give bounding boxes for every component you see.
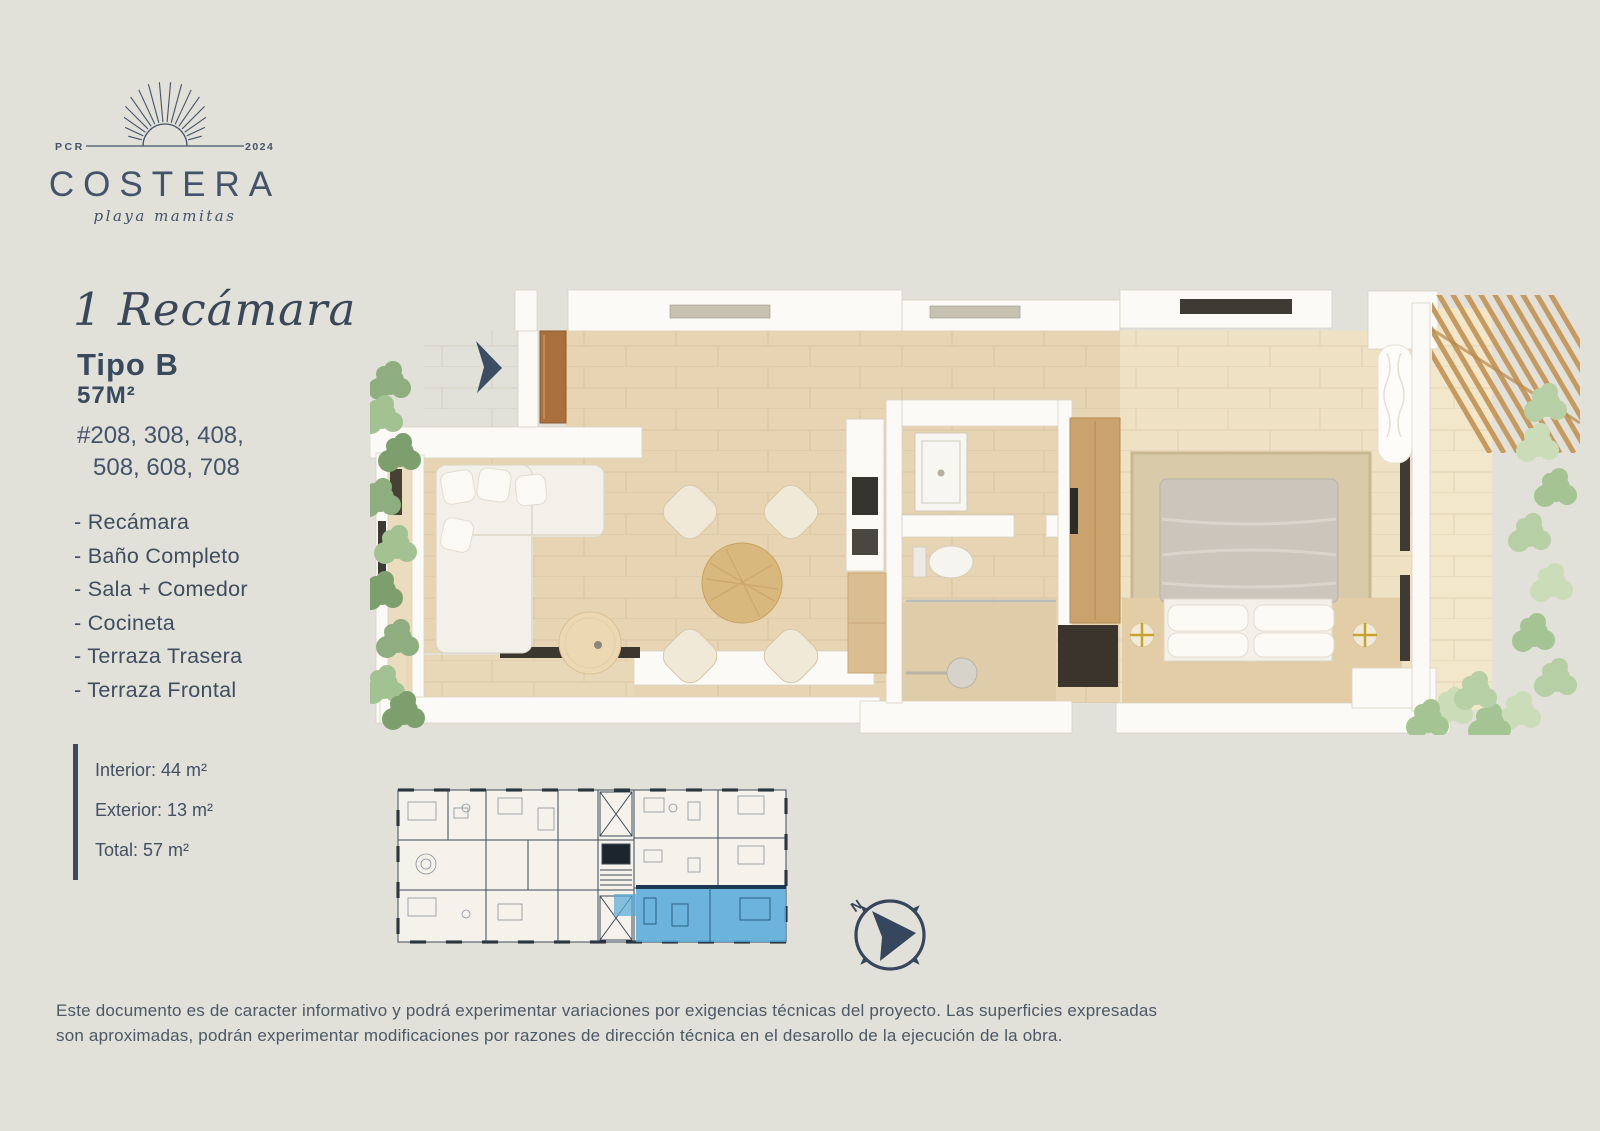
exterior-area: Exterior: 13 m² <box>95 790 213 830</box>
key-plan <box>388 778 792 948</box>
compass-north-label: N <box>848 896 865 915</box>
sun-rays-icon <box>124 82 206 140</box>
logo-tagline: playa mamitas <box>94 207 237 225</box>
toilet <box>929 546 973 578</box>
interior-area: Interior: 44 m² <box>95 750 213 790</box>
unit-numbers: #208, 308, 408, 508, 608, 708 <box>77 420 244 484</box>
sun-icon <box>143 124 187 146</box>
logo-year: 2024 <box>245 141 274 153</box>
feature-item: - Terraza Trasera <box>74 640 248 674</box>
shower-floor <box>902 603 1056 701</box>
compass-arrow <box>872 911 916 961</box>
unit-area-label: 57M² <box>77 382 136 410</box>
disclaimer-line2: son aproximadas, podrán experimentar mod… <box>56 1023 1157 1048</box>
feature-list: - Recámara- Baño Completo- Sala + Comedo… <box>74 506 248 707</box>
costera-logo: PCR 2024 COSTERA playa mamitas <box>50 80 280 245</box>
feature-item: - Sala + Comedor <box>74 573 248 607</box>
feature-item: - Baño Completo <box>74 540 248 574</box>
curtain <box>1378 345 1412 463</box>
compass-icon: N <box>842 885 938 981</box>
unit-numbers-line2: 508, 608, 708 <box>77 452 244 484</box>
measurements-block: Interior: 44 m² Exterior: 13 m² Total: 5… <box>73 744 213 880</box>
highlighted-unit <box>614 885 786 942</box>
shower-head <box>947 658 977 688</box>
floorplan-render <box>370 283 1580 735</box>
total-area: Total: 57 m² <box>95 830 213 870</box>
brochure-page: PCR 2024 COSTERA playa mamitas 1 Recámar… <box>0 0 1600 1131</box>
feature-item: - Terraza Frontal <box>74 674 248 708</box>
logo-brand: COSTERA <box>50 165 280 204</box>
toilet-tank <box>913 547 926 577</box>
logo-pcr: PCR <box>55 141 85 153</box>
disclaimer-line1: Este documento es de caracter informativ… <box>56 998 1157 1023</box>
unit-numbers-line1: #208, 308, 408, <box>77 420 244 452</box>
disclaimer: Este documento es de caracter informativ… <box>56 998 1157 1048</box>
unit-type-label: Tipo B <box>77 347 179 383</box>
kitchen-counter <box>846 419 886 673</box>
feature-item: - Recámara <box>74 506 248 540</box>
feature-item: - Cocineta <box>74 607 248 641</box>
page-title: 1 Recámara <box>73 283 356 336</box>
coffee-table <box>559 612 621 674</box>
